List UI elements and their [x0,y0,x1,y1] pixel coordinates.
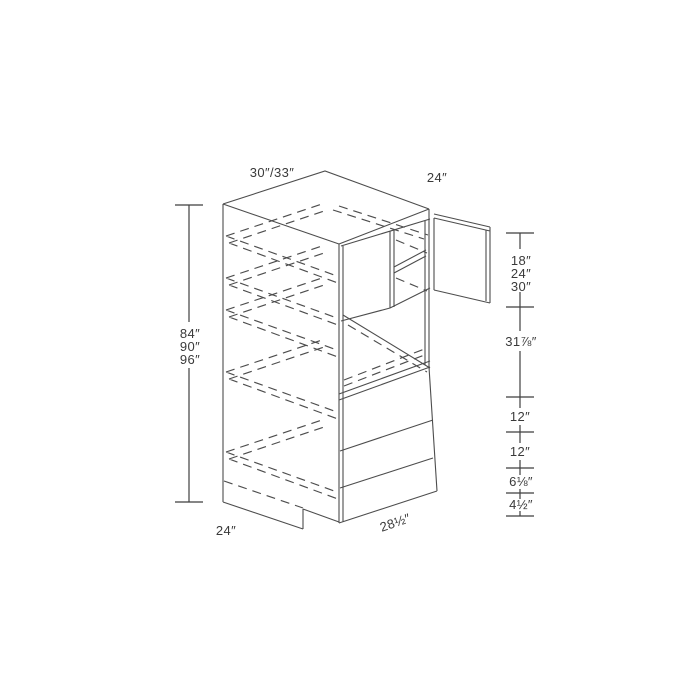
dimension-lines [175,205,534,516]
bottom-depth-label: 24″ [216,523,236,538]
toe-kick-height-label: 4½″ [509,497,533,512]
cabinet-line-art [223,171,490,529]
oven-opening-height-label: 31⅞″ [505,334,537,349]
hidden-lines [224,204,428,508]
oven-cabinet-diagram: 30″/33″ 24″ 84″ 90″ 96″ 18″ 24″ 30″ 31⅞″… [0,0,700,700]
hidden-shelf-lines [226,204,338,499]
drawer-height-2-label: 12″ [510,444,530,459]
opening-width-label: 28½″ [378,510,413,534]
oven-cavity-and-drawers [339,315,433,488]
top-section-height-30-label: 30″ [511,279,531,294]
top-width-label: 30″/33″ [250,165,295,180]
cabinet-carcass-outline [223,171,437,529]
top-depth-label: 24″ [427,170,447,185]
diagram-canvas: 30″/33″ 24″ 84″ 90″ 96″ 18″ 24″ 30″ 31⅞″… [0,0,700,700]
open-right-door [434,214,490,303]
drawer-height-1-label: 12″ [510,409,530,424]
upper-doors-and-shelf [341,219,430,321]
height-option-96-label: 96″ [180,352,200,367]
drawer-height-3-label: 6⅛″ [509,474,533,489]
